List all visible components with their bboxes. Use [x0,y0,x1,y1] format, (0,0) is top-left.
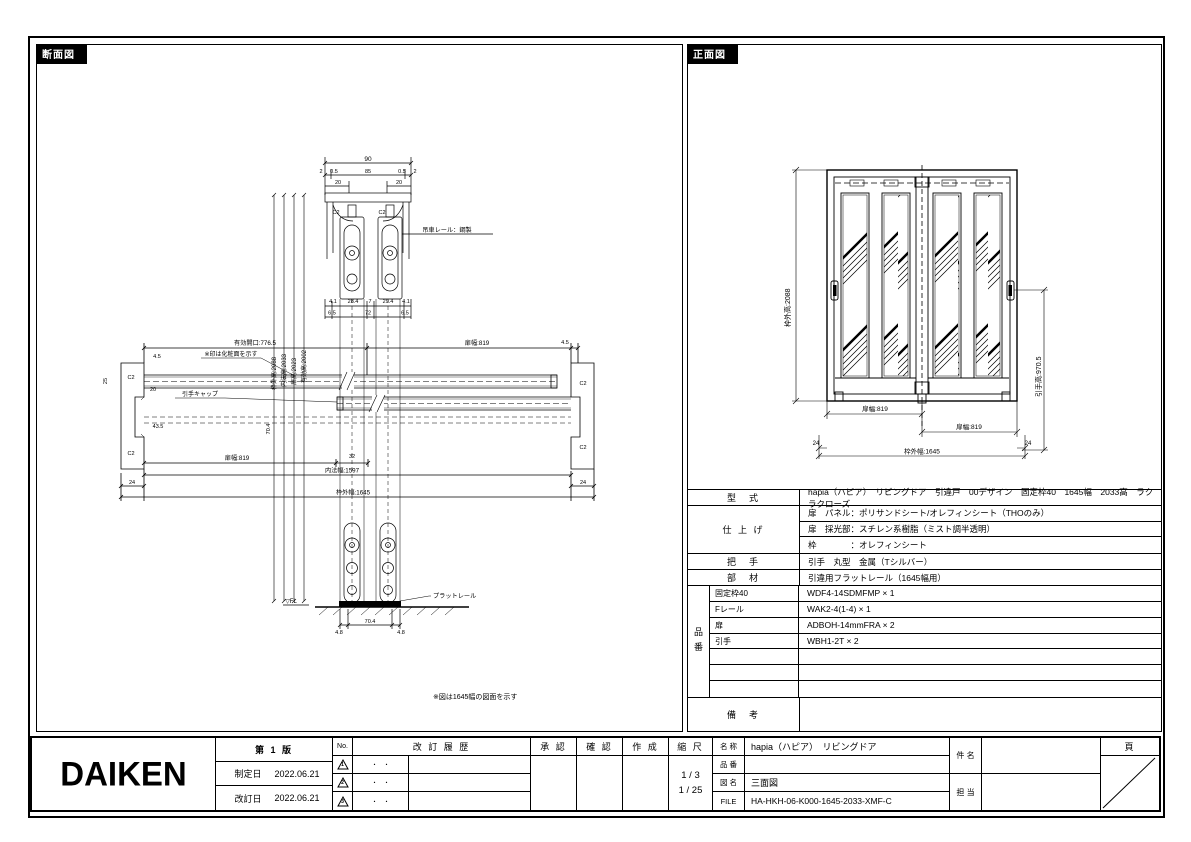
dim-frame-outer-width: 枠外幅:1645 [904,447,940,456]
dim-handle-height: 引手高:970.5 [1034,356,1043,397]
company-logo: DAIKEN [32,738,215,810]
pn-value: WAK2-4(1-4) × 1 [799,602,1161,617]
approval-column: 承 認 [530,738,576,810]
pn-value [799,665,1161,680]
create-column: 作 成 [622,738,668,810]
drawing-name-label: 図 名 [713,774,745,791]
chamfer-c2-right: C2 [378,210,385,216]
pn-value: WDF4-14SDMFMP × 1 [799,586,1161,601]
dim-704-vertical: 70.4 [266,424,272,435]
enacted-date: 2022.06.21 [274,769,319,779]
file-row: FILE HA-HKH-06-K000-1645-2033-XMF-C [713,792,949,810]
subject-block: 件 名 担 当 [949,738,1100,810]
create-header: 作 成 [623,738,668,756]
partnumber-row: 品 番 [713,756,949,774]
revision-dots: ・ ・ [353,792,409,810]
spec-model-value: hapia（ハピア） リビングドア 引違戸 00デザイン 固定枠40 1645幅… [800,490,1161,505]
check-column: 確 認 [576,738,622,810]
dim-24-right: 24 [580,480,586,486]
drawing-sheet: 断面図 90 [0,0,1191,842]
dim-door-height: 扉高:2023 [290,357,298,385]
product-name: hapia（ハピア） リビングドア [745,738,949,755]
flat-rail-leader-label: プラットレール [433,593,476,600]
dim-45-right: 4.5 [561,340,569,346]
page-header: 頁 [1101,738,1159,756]
pn-name: Fレール [710,602,799,617]
spec-finish-panel: 扉 パネル：ポリサンドシート/オレフィンシート（THOのみ） [800,506,1161,522]
name-label: 名 称 [713,738,745,755]
approval-stamp-area [531,756,576,810]
front-view-dim-labels: 枠外高:2088 引手高:970.5 扉幅:819 扉幅:819 24 24 枠… [783,288,1043,455]
revision-triangle-icon: 2 [337,777,349,788]
pn-value [799,649,1161,664]
spec-notes-row: 備 考 [688,698,1161,731]
specification-table: 型 式 hapia（ハピア） リビングドア 引違戸 00デザイン 固定枠40 1… [688,489,1161,731]
page-column: 頁 [1100,738,1159,810]
spec-member-value: 引違用フラットレール（1645幅用） [800,570,1161,585]
revision-history-row: ・ ・ [353,756,530,774]
dim-effective-opening: 有効開口:776.5 [234,339,277,347]
revision-history-row: ・ ・ [353,792,530,810]
drawing-name-value: 三面図 [745,774,949,791]
revision-description [409,792,530,810]
floor-level-mark: ▽FL [285,599,297,605]
drawing-info-block: 名 称 hapia（ハピア） リビングドア 品 番 図 名 三面図 FILE H… [712,738,1159,810]
no-header: No. [333,738,352,756]
dim-65-left: 6.5 [328,311,336,317]
dim-20-left: 20 [335,180,341,186]
front-view-title: 正面図 [687,44,738,64]
dim-48-left: 4.8 [335,630,343,636]
width-variant-note: ※図は1645幅の図面を示す [433,692,517,701]
plan-section [119,343,596,501]
revision-triangle-icon: 1 [337,759,349,770]
spec-notes-label: 備 考 [688,698,800,731]
revision-history-row: ・ ・ [353,774,530,792]
table-row [710,665,1161,681]
door-elevation [827,165,1017,429]
pn-name: 扉 [710,618,799,633]
chamfer-c2-jamb-right-bottom: C2 [579,445,586,451]
dim-24-right: 24 [1025,441,1032,447]
revision-dots: ・ ・ [353,774,409,791]
revised-date-row: 改訂日 2022.06.21 [216,786,332,810]
check-header: 確 認 [577,738,622,756]
table-row [710,649,1161,665]
revised-label: 改訂日 [228,792,274,805]
staff-value [982,774,1100,810]
dim-inner-width: 内法幅:1597 [325,467,360,475]
spec-finish-lite: 扉 採光部：スチレン系樹脂（ミスト調半透明） [800,522,1161,538]
dim-total-90: 90 [364,156,372,163]
floor-detail-labels: ▽FL プラットレール 4.8 70.4 4.8 [285,593,476,636]
dim-20-jamb: 20 [150,387,156,393]
dim-20-right: 20 [396,180,402,186]
dim-05-right: 0.5 [398,169,406,175]
spec-handle-row: 把 手 引手 丸型 金属（Tシルバー） [688,554,1161,570]
chamfer-c2-left: C2 [332,210,339,216]
page-cell [1101,756,1159,810]
spec-model-label: 型 式 [688,490,800,505]
pn-value: WBH1-2T × 2 [799,634,1161,649]
diagonal-slash-icon [1101,756,1157,810]
subject-row: 件 名 [950,738,1100,774]
section-view-panel: 断面図 90 [36,44,683,732]
chamfer-c2-jamb-left-top: C2 [127,375,134,381]
dim-right-door-width: 扉幅:819 [956,422,982,431]
spec-handle-label: 把 手 [688,554,800,569]
cap-leader-label: 引手キャップ [182,390,218,398]
create-stamp-area [623,756,668,810]
finish-face-note: ※印は化粧面を示す [204,350,257,358]
table-row: 固定枠40 WDF4-14SDMFMP × 1 [710,586,1161,602]
dim-24-left: 24 [129,480,135,486]
spec-pn-label: 品番 [688,586,710,697]
revision-dots: ・ ・ [353,756,409,773]
table-row [710,681,1161,697]
dim-72: 72 [365,311,371,317]
scale-value-front: 1 / 25 [679,785,703,796]
enacted-date-row: 制定日 2022.06.21 [216,762,332,786]
name-row: 名 称 hapia（ハピア） リビングドア [713,738,949,756]
section-view-drawing: 90 2 0.5 85 0.5 2 20 20 C2 C2 吊車レール：鋼製 4… [37,45,682,731]
plan-section-labels: C2 C2 C2 C2 ※印は化粧面を示す 引手キャップ 有効開口:776.5 … [103,339,587,497]
hanger-rail-leader-label: 吊車レール：鋼製 [422,226,472,234]
spec-model-row: 型 式 hapia（ハピア） リビングドア 引違戸 00デザイン 固定枠40 1… [688,490,1161,506]
dim-85: 85 [365,169,371,175]
upper-rail-dim-labels: 90 2 0.5 85 0.5 2 20 20 C2 C2 吊車レール：鋼製 4… [319,156,471,317]
pn-value [799,681,1161,697]
dim-2-left: 2 [319,169,322,175]
staff-label: 担 当 [950,774,982,810]
dim-25: 25 [103,378,109,384]
edition-number: 第 1 版 [216,738,332,762]
subject-label: 件 名 [950,738,982,773]
dim-door-width-bottom: 扉幅:819 [225,454,250,462]
scale-value-section: 1 / 3 [681,770,700,781]
table-row: Fレール WAK2-4(1-4) × 1 [710,602,1161,618]
dim-41-right: 4.1 [402,299,410,305]
table-row: 扉 ADBOH-14mmFRA × 2 [710,618,1161,634]
revision-mark-1: 1 [333,756,352,774]
front-view-drawing: 枠外高:2088 引手高:970.5 扉幅:819 扉幅:819 24 24 枠… [688,45,1161,489]
height-dimension-labels: 枠外高:2088 内法高:2033 扉高:2023 有効高:2002 [270,349,308,390]
revision-history-column: 改 訂 履 歴 ・ ・ ・ ・ ・ ・ [352,738,530,810]
revision-history-header: 改 訂 履 歴 [353,738,530,756]
dim-65-right: 6.5 [401,311,409,317]
dim-7: 7 [368,299,371,305]
staff-row: 担 当 [950,774,1100,810]
chamfer-c2-jamb-left-bottom: C2 [127,451,134,457]
daiken-logo: DAIKEN [60,754,187,794]
revision-mark-2: 2 [333,774,352,792]
dim-05-left: 0.5 [330,169,338,175]
revision-no-column: No. 1 2 3 [332,738,352,810]
spec-member-label: 部 材 [688,570,800,585]
dim-2-right: 2 [413,169,416,175]
pn-name [710,649,799,664]
dim-45-left: 4.5 [153,354,161,360]
partnumber-label: 品 番 [713,756,745,773]
pn-name: 引手 [710,634,799,649]
scale-header: 縮 尺 [669,738,712,756]
dim-32: 32 [349,454,355,460]
pn-value: ADBOH-14mmFRA × 2 [799,618,1161,633]
pn-name [710,681,799,697]
revision-mark-3: 3 [333,792,352,810]
dim-24-left: 24 [813,441,820,447]
spec-finish-row: 仕 上 げ 扉 パネル：ポリサンドシート/オレフィンシート（THOのみ） 扉 採… [688,506,1161,554]
dim-435: 43.5 [153,424,164,430]
door-edge-verticals [340,299,400,607]
section-view-title: 断面図 [36,44,87,64]
dim-frame-outer-height: 枠外高:2088 [783,288,792,327]
partnumber-value [745,756,949,773]
pn-name [710,665,799,680]
dim-frame-outer-height: 枠外高:2088 [270,356,278,390]
dim-left-door-width: 扉幅:819 [862,404,888,413]
spec-finish-label: 仕 上 げ [688,506,800,553]
spec-partnumber-group: 品番 固定枠40 WDF4-14SDMFMP × 1 Fレール WAK2-4(1… [688,586,1161,698]
title-block: DAIKEN 第 1 版 制定日 2022.06.21 改訂日 2022.06.… [30,736,1161,812]
check-stamp-area [577,756,622,810]
scale-column: 縮 尺 1 / 3 1 / 25 [668,738,712,810]
revised-date: 2022.06.21 [274,793,319,803]
revision-triangle-icon: 3 [337,796,349,807]
front-view-panel: 正面図 [687,44,1162,732]
dim-effective-height: 有効高:2002 [300,349,308,383]
pn-name: 固定枠40 [710,586,799,601]
subject-value [982,738,1100,773]
spec-handle-value: 引手 丸型 金属（Tシルバー） [800,554,1161,569]
dim-704-floor: 70.4 [365,619,376,625]
flat-rail-profile [339,601,401,607]
dim-door-width-top: 扉幅:819 [465,339,490,347]
revision-description [409,774,530,791]
chamfer-c2-jamb-right-top: C2 [579,381,586,387]
revision-description [409,756,530,773]
enacted-label: 制定日 [228,767,274,780]
drawing-name-row: 図 名 三面図 [713,774,949,792]
height-dimension-chain [272,193,306,603]
file-label: FILE [713,792,745,810]
dim-frame-outer-width: 枠外幅:1645 [336,489,371,497]
upper-rail-section-detail [323,157,493,319]
right-jamb-profile [571,363,594,469]
spec-member-row: 部 材 引違用フラットレール（1645幅用） [688,570,1161,586]
file-name: HA-HKH-06-K000-1645-2033-XMF-C [745,792,949,810]
spec-notes-value [800,698,1161,731]
dim-284: 28.4 [348,299,359,305]
approval-header: 承 認 [531,738,576,756]
table-row: 引手 WBH1-2T × 2 [710,634,1161,650]
spec-finish-frame: 枠 ：オレフィンシート [800,537,1161,553]
edition-block: 第 1 版 制定日 2022.06.21 改訂日 2022.06.21 [215,738,332,810]
dim-41-left: 4.1 [329,299,337,305]
dim-48-right: 4.8 [397,630,405,636]
